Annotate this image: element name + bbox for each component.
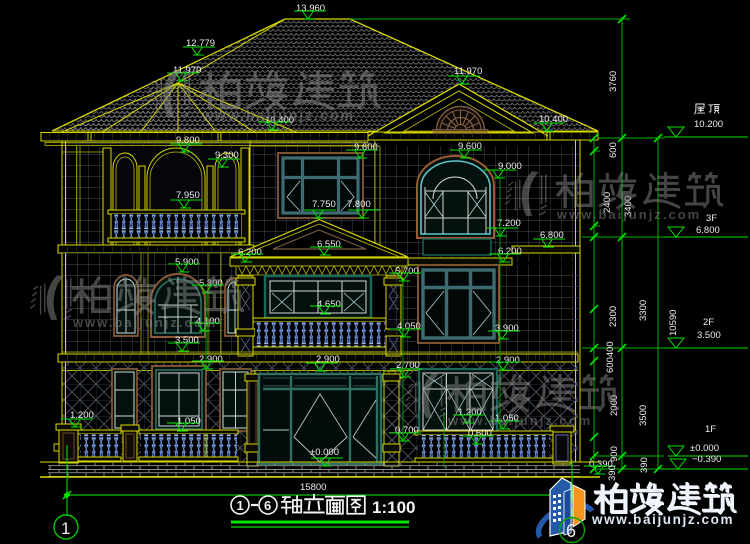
svg-text:3300: 3300	[638, 300, 649, 321]
svg-text:7.800: 7.800	[347, 199, 371, 210]
svg-text:7.950: 7.950	[176, 190, 200, 201]
svg-text:±0.000: ±0.000	[310, 447, 339, 458]
svg-text:13.960: 13.960	[296, 3, 325, 14]
svg-text:900: 900	[609, 446, 620, 462]
svg-text:9.600: 9.600	[354, 142, 378, 153]
svg-text:3F: 3F	[706, 213, 717, 224]
svg-text:7.750: 7.750	[312, 199, 336, 210]
svg-text:390: 390	[607, 465, 618, 481]
svg-text:2300: 2300	[608, 306, 619, 327]
svg-text:10590: 10590	[668, 310, 679, 336]
svg-text:3500: 3500	[638, 405, 649, 426]
svg-text:−0.390: −0.390	[692, 454, 721, 465]
svg-text:600: 600	[608, 142, 619, 158]
svg-text:1: 1	[61, 519, 70, 538]
svg-text:1:100: 1:100	[372, 498, 415, 517]
svg-text:www.baijunjz.com: www.baijunjz.com	[447, 413, 592, 428]
svg-text:6: 6	[264, 498, 271, 513]
svg-text:1F: 1F	[705, 424, 716, 435]
svg-text:6.800: 6.800	[696, 225, 720, 236]
svg-text:3760: 3760	[608, 71, 619, 92]
svg-text:11.970: 11.970	[454, 66, 482, 77]
svg-text:6.200: 6.200	[498, 246, 522, 257]
svg-text:600400: 600400	[605, 341, 616, 373]
svg-text:www.baijunjz.com: www.baijunjz.com	[556, 207, 701, 222]
svg-text:www.baijunjz.com: www.baijunjz.com	[72, 315, 217, 330]
svg-text:±0.000: ±0.000	[690, 443, 719, 454]
svg-text:6: 6	[566, 521, 576, 541]
svg-text:3.500: 3.500	[697, 330, 721, 341]
svg-text:www.baijunjz.com: www.baijunjz.com	[201, 107, 355, 123]
svg-text:10.200: 10.200	[694, 119, 723, 130]
svg-text:1: 1	[237, 498, 244, 513]
svg-text:390: 390	[639, 457, 650, 473]
svg-text:7.200: 7.200	[497, 218, 521, 229]
svg-text:1.050: 1.050	[177, 416, 201, 427]
svg-text:15800: 15800	[300, 482, 326, 493]
svg-text:www.baijunjz.com: www.baijunjz.com	[591, 512, 734, 527]
svg-text:2F: 2F	[703, 317, 714, 328]
